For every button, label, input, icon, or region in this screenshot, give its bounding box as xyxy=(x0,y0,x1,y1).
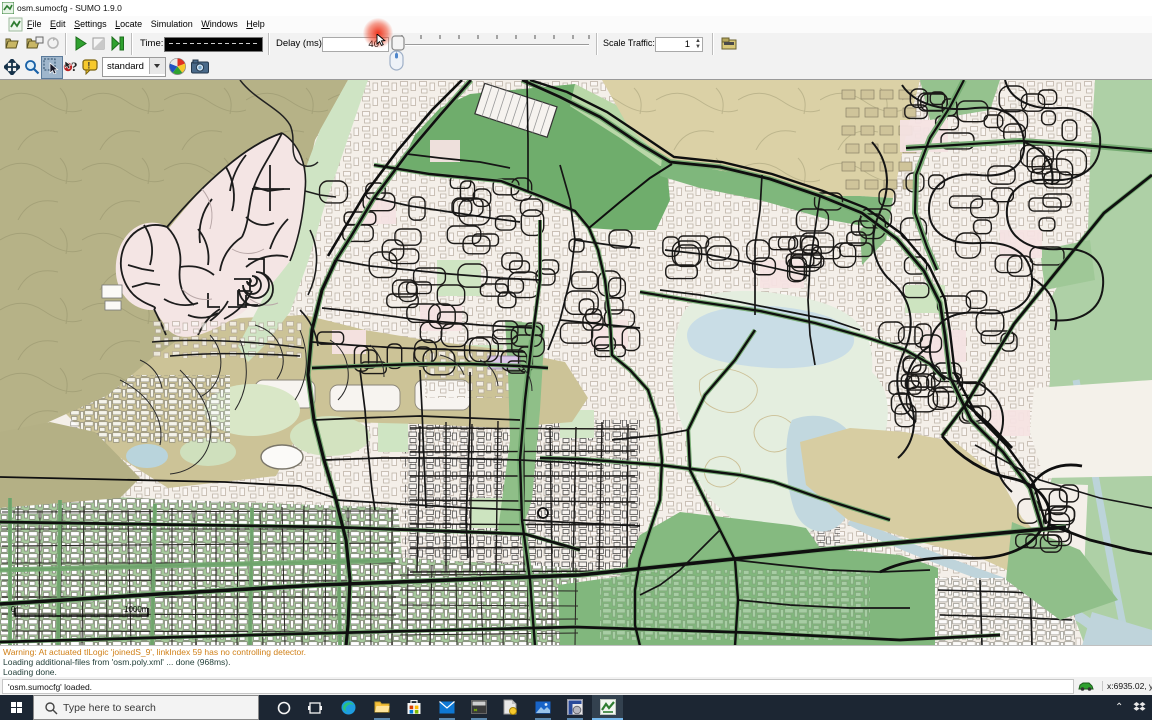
svg-text:!: ! xyxy=(87,60,90,70)
svg-text:?: ? xyxy=(71,59,78,74)
svg-text:1000m: 1000m xyxy=(124,605,149,614)
svg-text:0: 0 xyxy=(11,605,16,614)
